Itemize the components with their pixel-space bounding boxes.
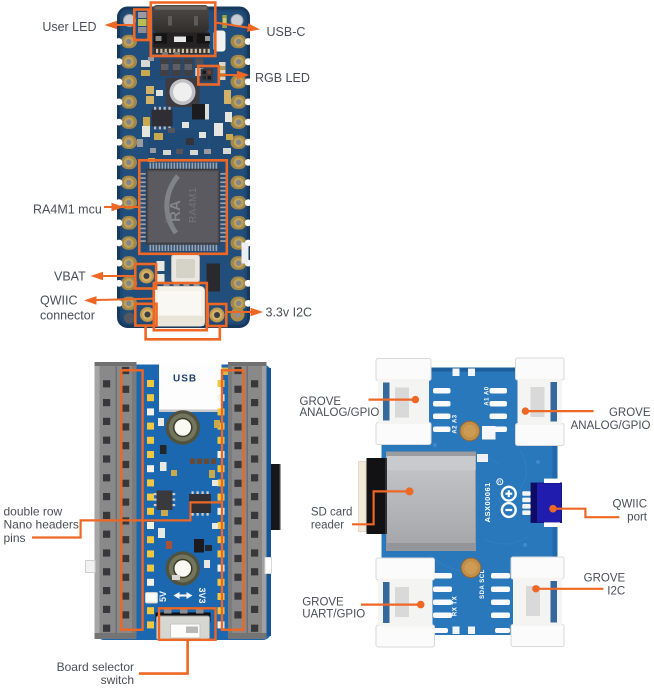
- svg-text:A1 A0: A1 A0: [485, 386, 491, 405]
- svg-text:QWIIC: QWIIC: [40, 294, 78, 308]
- svg-text:double row: double row: [4, 504, 63, 518]
- svg-text:reader: reader: [311, 520, 344, 532]
- svg-text:ASX00061: ASX00061: [483, 482, 492, 522]
- svg-text:3V3: 3V3: [197, 587, 207, 603]
- svg-text:GROVE: GROVE: [302, 596, 344, 608]
- svg-text:SD card: SD card: [311, 507, 353, 519]
- svg-text:5V: 5V: [158, 591, 168, 602]
- svg-text:RA4M1: RA4M1: [188, 187, 199, 223]
- svg-text:QWIIC: QWIIC: [613, 499, 648, 511]
- svg-text:RA4M1 mcu: RA4M1 mcu: [33, 203, 102, 217]
- svg-text:switch: switch: [101, 673, 134, 687]
- svg-text:GROVE: GROVE: [300, 396, 342, 408]
- svg-text:ANALOG/GPIO: ANALOG/GPIO: [300, 407, 380, 419]
- svg-text:Nano headers: Nano headers: [4, 518, 79, 532]
- svg-text:ANALOG/GPIO: ANALOG/GPIO: [571, 420, 651, 432]
- svg-text:VBAT: VBAT: [54, 270, 86, 284]
- svg-text:3.3v I2C: 3.3v I2C: [266, 306, 313, 320]
- svg-text:Board selector: Board selector: [57, 660, 134, 674]
- svg-text:A2 A3: A2 A3: [453, 414, 459, 433]
- svg-text:User LED: User LED: [42, 20, 96, 34]
- svg-text:USB: USB: [173, 374, 197, 385]
- svg-text:UART/GPIO: UART/GPIO: [302, 609, 365, 621]
- svg-text:USB-C: USB-C: [267, 25, 306, 39]
- svg-text:connector: connector: [40, 309, 95, 323]
- svg-text:pins: pins: [4, 531, 26, 545]
- svg-text:RX TX: RX TX: [453, 596, 459, 616]
- svg-text:RENESAS: RENESAS: [166, 198, 172, 223]
- svg-text:I2C: I2C: [607, 585, 625, 597]
- svg-text:GROVE: GROVE: [584, 572, 626, 584]
- svg-text:RGB LED: RGB LED: [255, 71, 310, 85]
- svg-text:SDA SCL: SDA SCL: [480, 569, 486, 599]
- svg-text:GROVE: GROVE: [609, 407, 651, 419]
- svg-text:port: port: [627, 512, 648, 524]
